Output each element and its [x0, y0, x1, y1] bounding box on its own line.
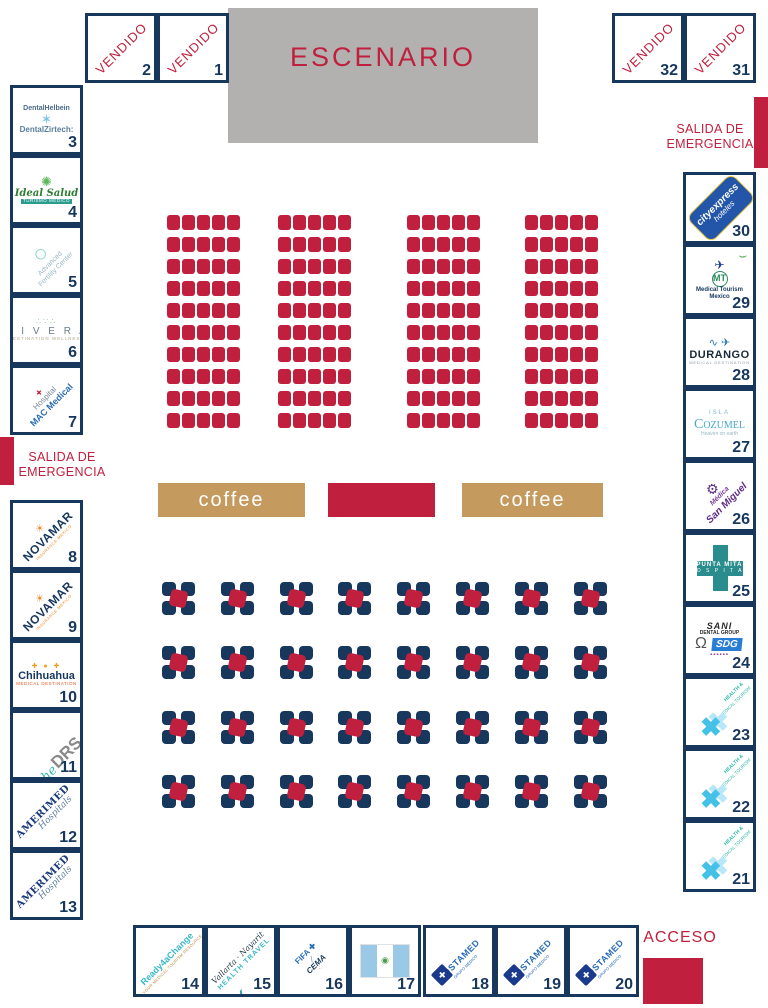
seat	[323, 369, 336, 384]
seat	[308, 413, 321, 428]
seat	[293, 413, 306, 428]
seat	[212, 369, 225, 384]
seat	[182, 259, 195, 274]
seat	[308, 259, 321, 274]
booth-27[interactable]: ISLACozumelHeaven on earth27	[683, 388, 756, 460]
seat	[540, 347, 553, 362]
seat	[555, 281, 568, 296]
seat	[293, 303, 306, 318]
seat	[167, 347, 180, 362]
table-center	[227, 652, 247, 672]
table-center	[344, 717, 364, 737]
table-center	[462, 652, 482, 672]
round-table	[338, 711, 371, 744]
seat	[452, 215, 465, 230]
seat	[323, 215, 336, 230]
seat	[167, 237, 180, 252]
booth-22[interactable]: HEALTH &MEDICAL TOURISM✖22	[683, 748, 756, 820]
booth-number: 29	[732, 295, 750, 313]
table-center	[286, 588, 306, 608]
seat	[555, 369, 568, 384]
round-table	[397, 775, 430, 808]
seat	[452, 259, 465, 274]
seat	[212, 237, 225, 252]
table-center	[462, 781, 482, 801]
seat	[585, 391, 598, 406]
seating-block-1	[167, 215, 242, 435]
table-center	[403, 652, 423, 672]
punta-mita-hospital-text: H O S P I T A L	[688, 569, 752, 575]
seat	[555, 347, 568, 362]
round-table	[338, 582, 371, 615]
booth-23[interactable]: HEALTH &MEDICAL TOURISM✖23	[683, 676, 756, 748]
seat	[308, 215, 321, 230]
seat	[585, 347, 598, 362]
table-center	[227, 781, 247, 801]
seat	[323, 391, 336, 406]
blue-cross-x-icon: ✖	[700, 786, 722, 812]
seat	[212, 325, 225, 340]
booth-28[interactable]: ∿ ✈DURANGOMEDICAL DESTINATION28	[683, 316, 756, 388]
seat	[197, 303, 210, 318]
seat	[452, 303, 465, 318]
seat	[585, 215, 598, 230]
booth-19[interactable]: COSTAMEDGRUPO MÉDICO✚19	[495, 925, 567, 997]
seat	[278, 391, 291, 406]
seat	[182, 237, 195, 252]
booth-9[interactable]: ☀NOVAMARINSURANCE MEXICO9	[10, 570, 83, 640]
seat	[437, 259, 450, 274]
seat	[227, 215, 240, 230]
booth-24[interactable]: SANIDENTAL GROUPSDG▪▪▪▪▪▪Ω24	[683, 604, 756, 676]
table-center	[286, 717, 306, 737]
seat	[197, 281, 210, 296]
seat	[525, 281, 538, 296]
sani-dental-group-text: SDG	[711, 638, 742, 651]
seat	[197, 215, 210, 230]
seat	[467, 237, 480, 252]
seat	[407, 215, 420, 230]
round-table	[280, 711, 313, 744]
round-table	[456, 582, 489, 615]
booth-7[interactable]: ✚HospitalMAC Medical7	[10, 365, 83, 435]
round-table	[221, 775, 254, 808]
emergency-exit-right-marker	[754, 97, 768, 168]
blue-cross-x-icon: ✖	[700, 858, 722, 884]
booth-vendido-31[interactable]: VENDIDO 31	[684, 13, 756, 83]
round-table	[456, 775, 489, 808]
seat	[323, 303, 336, 318]
table-center	[344, 652, 364, 672]
booth-11[interactable]: theDRS.11	[10, 710, 83, 780]
seat	[167, 303, 180, 318]
booth-number: 14	[181, 976, 199, 994]
seat	[278, 281, 291, 296]
table-center	[344, 588, 364, 608]
seat	[407, 413, 420, 428]
seat	[293, 369, 306, 384]
seat	[338, 259, 351, 274]
seat	[407, 347, 420, 362]
seat	[197, 237, 210, 252]
seat	[278, 325, 291, 340]
seating-block-4	[525, 215, 600, 435]
seat	[467, 325, 480, 340]
guatemala-emblem: ◉	[381, 956, 389, 966]
seat	[540, 369, 553, 384]
seat	[227, 413, 240, 428]
booth-13[interactable]: AMERIMEDHospitals13	[10, 850, 83, 920]
seat	[525, 237, 538, 252]
round-table	[338, 646, 371, 679]
cema-fifa-text: /	[309, 956, 314, 963]
seat	[437, 325, 450, 340]
seat	[585, 303, 598, 318]
round-table	[162, 582, 195, 615]
seat	[525, 413, 538, 428]
durango-medical-destination-text: MEDICAL DESTINATION	[689, 361, 750, 365]
seat	[570, 413, 583, 428]
seat	[585, 237, 598, 252]
seat	[167, 281, 180, 296]
access-marker	[643, 958, 703, 1004]
seat	[407, 325, 420, 340]
round-table	[515, 711, 548, 744]
round-table	[162, 711, 195, 744]
round-table	[280, 582, 313, 615]
booth-number: 13	[59, 899, 77, 917]
table-center	[403, 717, 423, 737]
seat	[452, 237, 465, 252]
table-center	[286, 652, 306, 672]
round-table	[574, 775, 607, 808]
booth-4[interactable]: ✺Ideal SaludTURISMO MÉDICO4	[10, 155, 83, 225]
booth-8[interactable]: ☀NOVAMARINSURANCE MEXICO8	[10, 500, 83, 570]
sparkle-dots-icon: ∴∵∴	[36, 318, 57, 326]
seat	[585, 369, 598, 384]
seat	[452, 325, 465, 340]
booth-15[interactable]: Vallarta · NayaritHEALTH TRAVEL⋎15	[205, 925, 277, 997]
seat	[338, 413, 351, 428]
table-center	[521, 717, 541, 737]
seat	[467, 413, 480, 428]
seat	[540, 391, 553, 406]
seat	[437, 369, 450, 384]
seat	[323, 413, 336, 428]
seat	[278, 347, 291, 362]
seat	[422, 325, 435, 340]
seat	[227, 281, 240, 296]
coffee-station-right: coffee	[462, 483, 603, 517]
table-center	[521, 781, 541, 801]
seat	[437, 237, 450, 252]
booth-number: 7	[68, 414, 77, 432]
table-center	[168, 652, 188, 672]
seat	[227, 237, 240, 252]
booth-21[interactable]: HEALTH &MEDICAL TOURISM✖21	[683, 820, 756, 892]
booth-number: 17	[397, 976, 415, 994]
seat	[422, 413, 435, 428]
seat	[555, 259, 568, 274]
booth-18[interactable]: COSTAMEDGRUPO MÉDICO✚18	[423, 925, 495, 997]
seat	[197, 391, 210, 406]
seat	[167, 413, 180, 428]
booth-3[interactable]: DentalHelbein✶DentalZirtech:3	[10, 85, 83, 155]
booth-5[interactable]: ○AdvancedFertility Center5	[10, 225, 83, 295]
seat	[540, 281, 553, 296]
seat	[212, 391, 225, 406]
seat	[182, 369, 195, 384]
coffee-station-left: coffee	[158, 483, 305, 517]
table-center	[462, 588, 482, 608]
table-center	[403, 588, 423, 608]
booth-29[interactable]: ✈⌣MTMedical TourismMexico29	[683, 244, 756, 316]
seat	[525, 303, 538, 318]
table-center	[168, 717, 188, 737]
mivera-text: DESTINATION WELLNESS	[10, 337, 83, 342]
booth-17[interactable]: ◉17	[349, 925, 421, 997]
table-center	[521, 652, 541, 672]
round-table	[456, 646, 489, 679]
booth-30[interactable]: cityexpresshoteles30	[683, 172, 756, 244]
table-center	[580, 717, 600, 737]
colored-dots-icon: ✚ ● ✚	[32, 663, 62, 670]
booth-16[interactable]: FIFA ✚/CEMA⁖16	[277, 925, 349, 997]
seat	[212, 259, 225, 274]
seat	[437, 347, 450, 362]
seat	[525, 259, 538, 274]
booth-6[interactable]: ∴∵∴M I V E R ADESTINATION WELLNESS6	[10, 295, 83, 365]
table-center	[286, 781, 306, 801]
round-table	[221, 582, 254, 615]
seat	[525, 325, 538, 340]
seat	[278, 413, 291, 428]
round-table	[280, 775, 313, 808]
seat	[323, 259, 336, 274]
booth-10[interactable]: ✚ ● ✚ChihuahuaMEDICAL DESTINATION10	[10, 640, 83, 710]
round-table	[456, 711, 489, 744]
seat	[227, 303, 240, 318]
seat	[422, 391, 435, 406]
seat	[338, 347, 351, 362]
seat	[570, 369, 583, 384]
seat	[422, 237, 435, 252]
round-table	[515, 646, 548, 679]
booth-number: 24	[732, 655, 750, 673]
guatemala-flag-logo: ◉	[360, 944, 410, 978]
booth-number: 2	[142, 62, 151, 80]
seat	[338, 215, 351, 230]
seat	[570, 237, 583, 252]
round-table	[397, 711, 430, 744]
seat	[308, 237, 321, 252]
whale-tail-icon: ⋎	[231, 987, 252, 997]
booth-number: 26	[732, 511, 750, 529]
booth-number: 23	[732, 727, 750, 745]
seat	[570, 281, 583, 296]
booth-25[interactable]: PUNTA MITAH O S P I T A L25	[683, 532, 756, 604]
seat	[338, 325, 351, 340]
booth-14[interactable]: Ready4aChangeYOUR MEDICAL TOURISM RESOUR…	[133, 925, 205, 997]
seat	[525, 215, 538, 230]
table-center	[521, 588, 541, 608]
seat	[182, 215, 195, 230]
booth-12[interactable]: AMERIMEDHospitals12	[10, 780, 83, 850]
seat	[167, 325, 180, 340]
seat	[338, 237, 351, 252]
booth-vendido-32[interactable]: VENDIDO 32	[612, 13, 684, 83]
seat	[570, 303, 583, 318]
seat	[212, 413, 225, 428]
seat	[407, 237, 420, 252]
seat	[570, 325, 583, 340]
seat	[182, 347, 195, 362]
blue-cross-x-icon: ✖	[700, 714, 722, 740]
seat	[555, 237, 568, 252]
booth-number: 9	[68, 619, 77, 637]
seat	[227, 259, 240, 274]
seat	[308, 369, 321, 384]
heartbeat-plane-icon: ∿ ✈	[709, 338, 731, 349]
seat	[338, 281, 351, 296]
medical-tourism-mexico-text: Mexico	[709, 294, 729, 301]
round-table	[574, 646, 607, 679]
round-table	[397, 646, 430, 679]
seat	[422, 215, 435, 230]
cema-icon: ⁖	[318, 966, 324, 972]
booth-vendido-2[interactable]: VENDIDO 2	[85, 13, 157, 83]
round-table	[338, 775, 371, 808]
seat	[422, 259, 435, 274]
table-center	[462, 717, 482, 737]
booth-26[interactable]: ⚙MédicaSan Miguel26	[683, 460, 756, 532]
seat	[278, 303, 291, 318]
booth-number: 10	[59, 689, 77, 707]
seat	[212, 281, 225, 296]
seat	[293, 391, 306, 406]
booth-number: 16	[325, 976, 343, 994]
ideal-salud-text: TURISMO MÉDICO	[21, 199, 72, 204]
seat	[422, 303, 435, 318]
booth-number: 28	[732, 367, 750, 385]
table-center	[580, 652, 600, 672]
seat	[293, 281, 306, 296]
seating-block-3	[407, 215, 482, 435]
seat	[540, 303, 553, 318]
seat	[212, 347, 225, 362]
seat	[437, 391, 450, 406]
round-table	[515, 775, 548, 808]
seat	[437, 303, 450, 318]
seat	[467, 347, 480, 362]
seat	[308, 325, 321, 340]
seat	[167, 215, 180, 230]
seat	[167, 369, 180, 384]
seat	[437, 215, 450, 230]
seat	[182, 413, 195, 428]
table-center	[227, 588, 247, 608]
seat	[570, 347, 583, 362]
seat	[467, 215, 480, 230]
round-table	[221, 646, 254, 679]
stage: ESCENARIO	[228, 8, 538, 143]
seat	[585, 281, 598, 296]
seat	[278, 369, 291, 384]
purple-squares: ▪▪▪▪▪▪	[710, 652, 729, 659]
seat	[308, 281, 321, 296]
isla-cozumel-text: Heaven on earth	[701, 432, 738, 438]
table-center	[580, 588, 600, 608]
table-center	[168, 588, 188, 608]
round-table	[397, 582, 430, 615]
seat	[308, 347, 321, 362]
seat	[182, 325, 195, 340]
plane-icon: ✈	[714, 260, 724, 271]
seat	[540, 237, 553, 252]
seat	[182, 303, 195, 318]
floor-plan: ESCENARIO VENDIDO 2 VENDIDO 1 VENDIDO 32…	[0, 0, 768, 1008]
booth-number: 18	[471, 976, 489, 994]
seat	[452, 413, 465, 428]
isla-cozumel-text: ISLA	[709, 410, 730, 417]
seat	[422, 369, 435, 384]
seat	[197, 413, 210, 428]
head-table	[328, 483, 435, 517]
booth-number: 12	[59, 829, 77, 847]
seat	[323, 237, 336, 252]
seat	[227, 391, 240, 406]
round-table	[162, 646, 195, 679]
round-table	[280, 646, 313, 679]
seat	[407, 369, 420, 384]
round-table	[515, 582, 548, 615]
round-table	[221, 711, 254, 744]
seat	[437, 281, 450, 296]
seat	[278, 237, 291, 252]
coffee-label: coffee	[499, 489, 565, 512]
seat	[278, 215, 291, 230]
booth-20[interactable]: COSTAMEDGRUPO MÉDICO✚20	[567, 925, 639, 997]
emergency-exit-left-label: SALIDA DE EMERGENCIA	[10, 450, 114, 480]
ideal-salud-icon: ✺	[41, 176, 52, 188]
round-table	[574, 582, 607, 615]
booth-number: 1	[214, 62, 223, 80]
seat	[278, 259, 291, 274]
seat	[182, 391, 195, 406]
dental-helbein-zirtech-text: DentalZirtech:	[20, 126, 74, 135]
seat	[197, 259, 210, 274]
stage-label: ESCENARIO	[228, 42, 538, 73]
seat	[452, 369, 465, 384]
seat	[570, 391, 583, 406]
booth-vendido-1[interactable]: VENDIDO 1	[157, 13, 229, 83]
seat	[167, 391, 180, 406]
seat	[585, 259, 598, 274]
seat	[540, 215, 553, 230]
seat	[227, 347, 240, 362]
seat	[338, 391, 351, 406]
booth-number: 22	[732, 799, 750, 817]
seat	[227, 325, 240, 340]
seat	[570, 215, 583, 230]
seat	[323, 281, 336, 296]
seat	[197, 369, 210, 384]
seat	[452, 347, 465, 362]
seat	[212, 303, 225, 318]
seat	[555, 413, 568, 428]
seat	[227, 369, 240, 384]
seat	[452, 391, 465, 406]
